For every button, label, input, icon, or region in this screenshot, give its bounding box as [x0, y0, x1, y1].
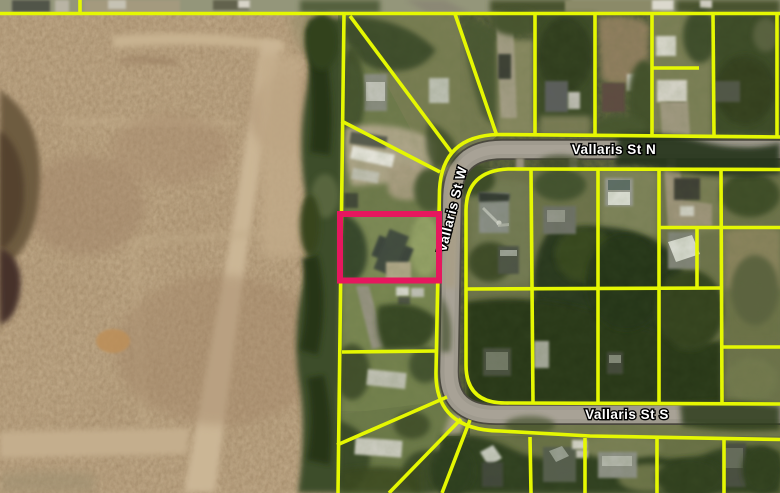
svg-text:Vallaris St N: Vallaris St N — [572, 142, 657, 157]
svg-text:Vallaris St S: Vallaris St S — [585, 407, 669, 422]
